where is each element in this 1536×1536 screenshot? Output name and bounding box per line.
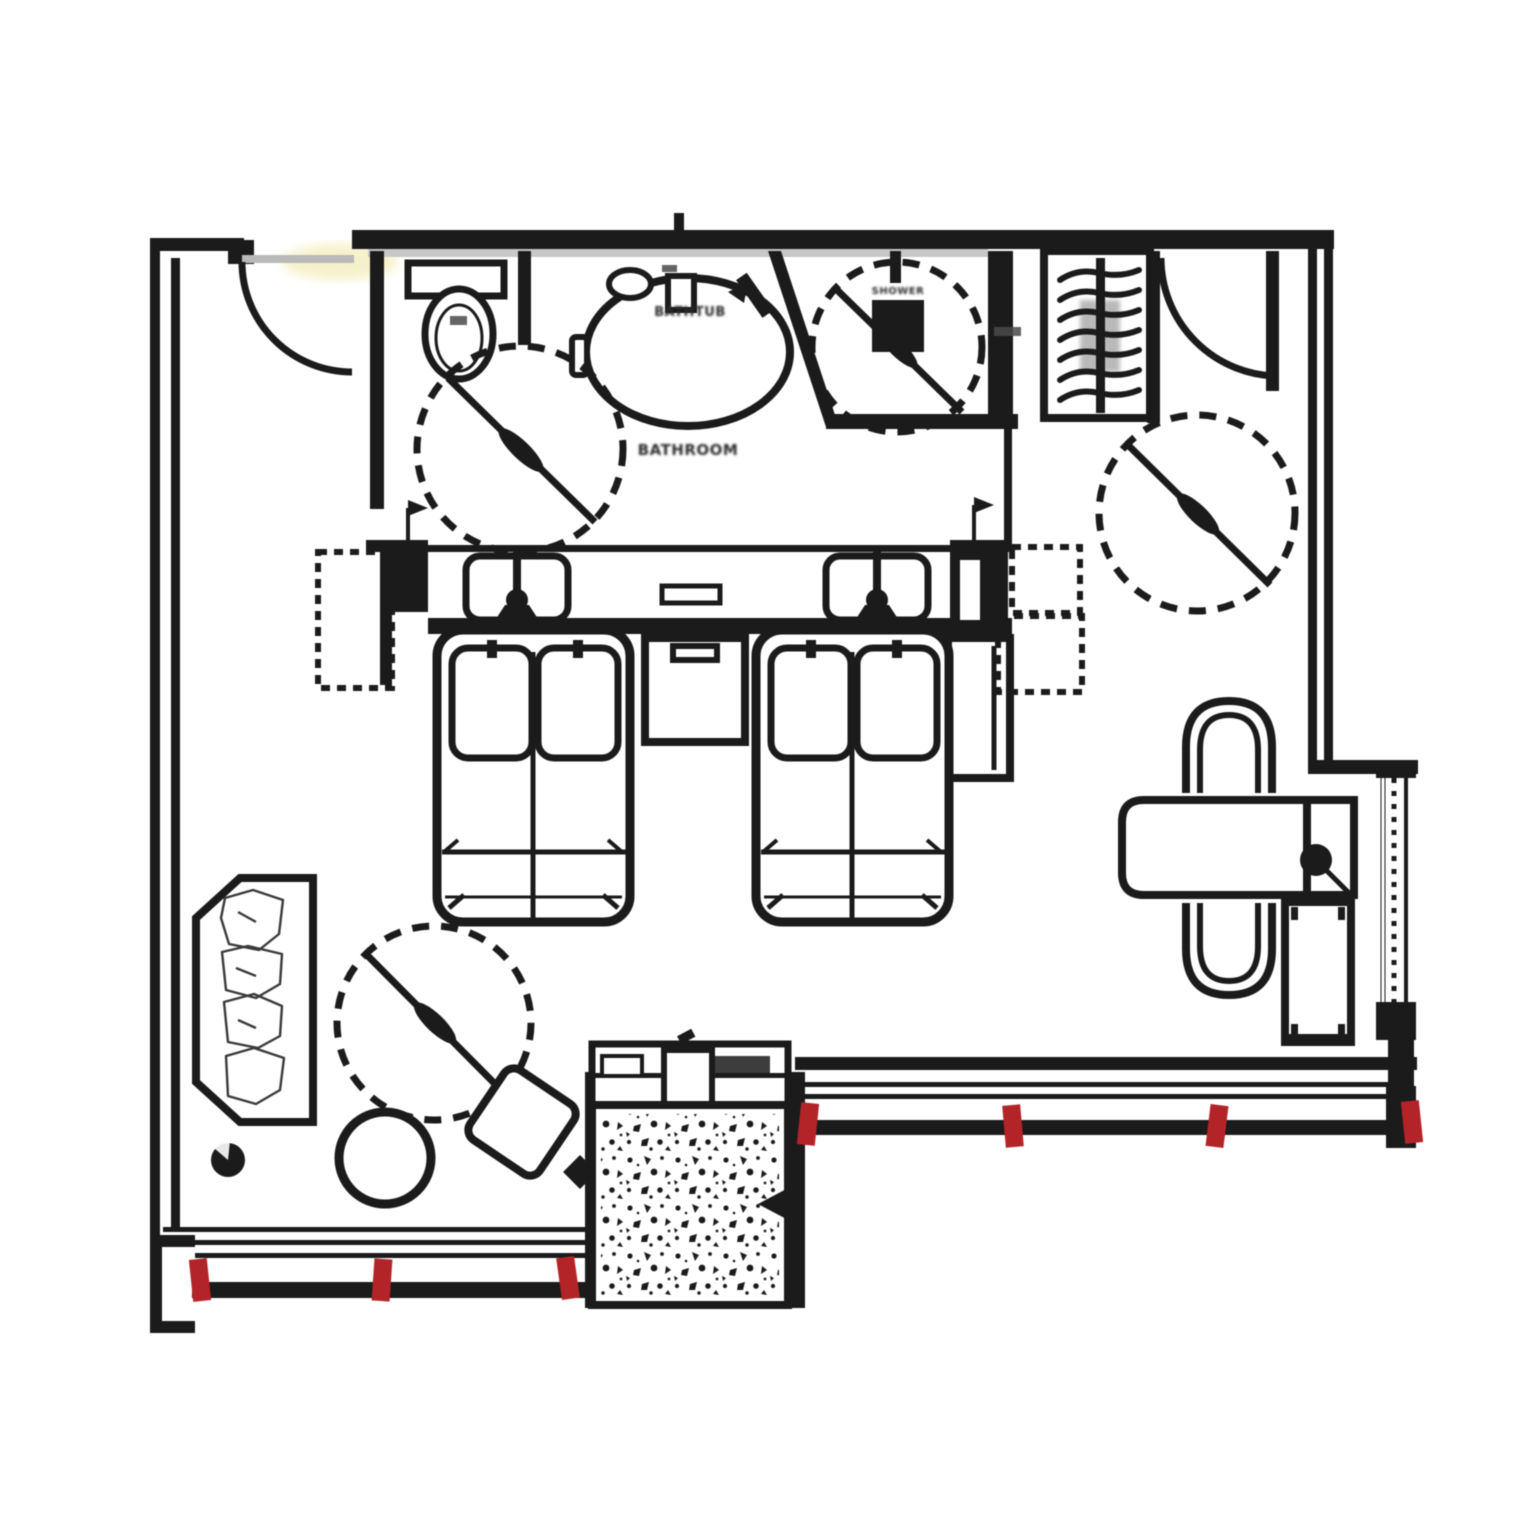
bottom-left-window-band [150, 1227, 588, 1333]
tall-cabinet [1285, 902, 1351, 1042]
shower-head-stub [890, 251, 901, 283]
overhead-cabinet-dashed-1 [1012, 547, 1080, 613]
shower-label: SHOWER [872, 286, 925, 297]
nightstand-handle [673, 646, 717, 660]
left-wall-outer [150, 251, 160, 1235]
beds [437, 630, 949, 922]
bed-right [756, 630, 949, 922]
bed-left [437, 630, 630, 922]
switch-flag-left [408, 500, 428, 545]
desk [1122, 800, 1307, 895]
shower-right-wall [988, 251, 1013, 429]
bathtub-accessory [609, 270, 651, 298]
side-stool [211, 1141, 245, 1177]
bottom-right-window-band [795, 1057, 1417, 1135]
vestibule-door-leaf [1266, 251, 1279, 391]
round-table [339, 1112, 431, 1204]
vestibule-door-swing-arc [1161, 258, 1279, 376]
ottoman-square [464, 1064, 581, 1181]
lounge [196, 878, 597, 1204]
closet-side-line [1004, 429, 1012, 547]
left-wall-inner [171, 258, 180, 1230]
desk-chair-top [1186, 701, 1272, 793]
toilet-mark [450, 316, 467, 325]
toilet [408, 263, 504, 379]
window-mullion-marker [1002, 1104, 1024, 1147]
floorplan-svg: BATHTUB BATHROOM SHOWER [0, 0, 1536, 1536]
clearance-circle-entry [1099, 415, 1295, 611]
top-wall [352, 230, 1334, 249]
pillow [538, 648, 618, 758]
floorplan-canvas: BATHTUB BATHROOM SHOWER [0, 0, 1536, 1536]
bathroom-left-wall [370, 251, 384, 509]
pillow [452, 648, 532, 758]
entry-door-leaf [242, 255, 354, 263]
bathtub-label: BATHTUB [654, 305, 726, 320]
toilet-divider-wall [518, 251, 531, 345]
window-mullion-marker [372, 1258, 393, 1301]
fixture-mark [662, 265, 677, 272]
sofa [196, 878, 313, 1122]
desk-area [1122, 701, 1354, 1042]
desk-chair-bottom [1186, 903, 1272, 995]
wardrobe [1044, 251, 1150, 418]
bathroom-label: BATHROOM [638, 441, 739, 459]
window-mullion-marker [1206, 1104, 1229, 1148]
shower-small-mark [994, 327, 1021, 336]
counter-tray [662, 586, 720, 603]
bay-window [585, 1029, 805, 1308]
right-window [1376, 760, 1416, 1148]
vanity-left-block [392, 540, 428, 612]
bathtub [572, 265, 790, 426]
pillow [771, 648, 851, 758]
right-wall-inner [1324, 230, 1333, 770]
bay-seat-center-box [664, 1050, 712, 1106]
nightstand [645, 638, 745, 742]
pillow [857, 648, 937, 758]
right-wall-outer [1308, 230, 1317, 770]
switch-flag-right [974, 497, 994, 540]
top-wall-tick [674, 213, 684, 231]
bay-speckled-floor [601, 1114, 779, 1296]
